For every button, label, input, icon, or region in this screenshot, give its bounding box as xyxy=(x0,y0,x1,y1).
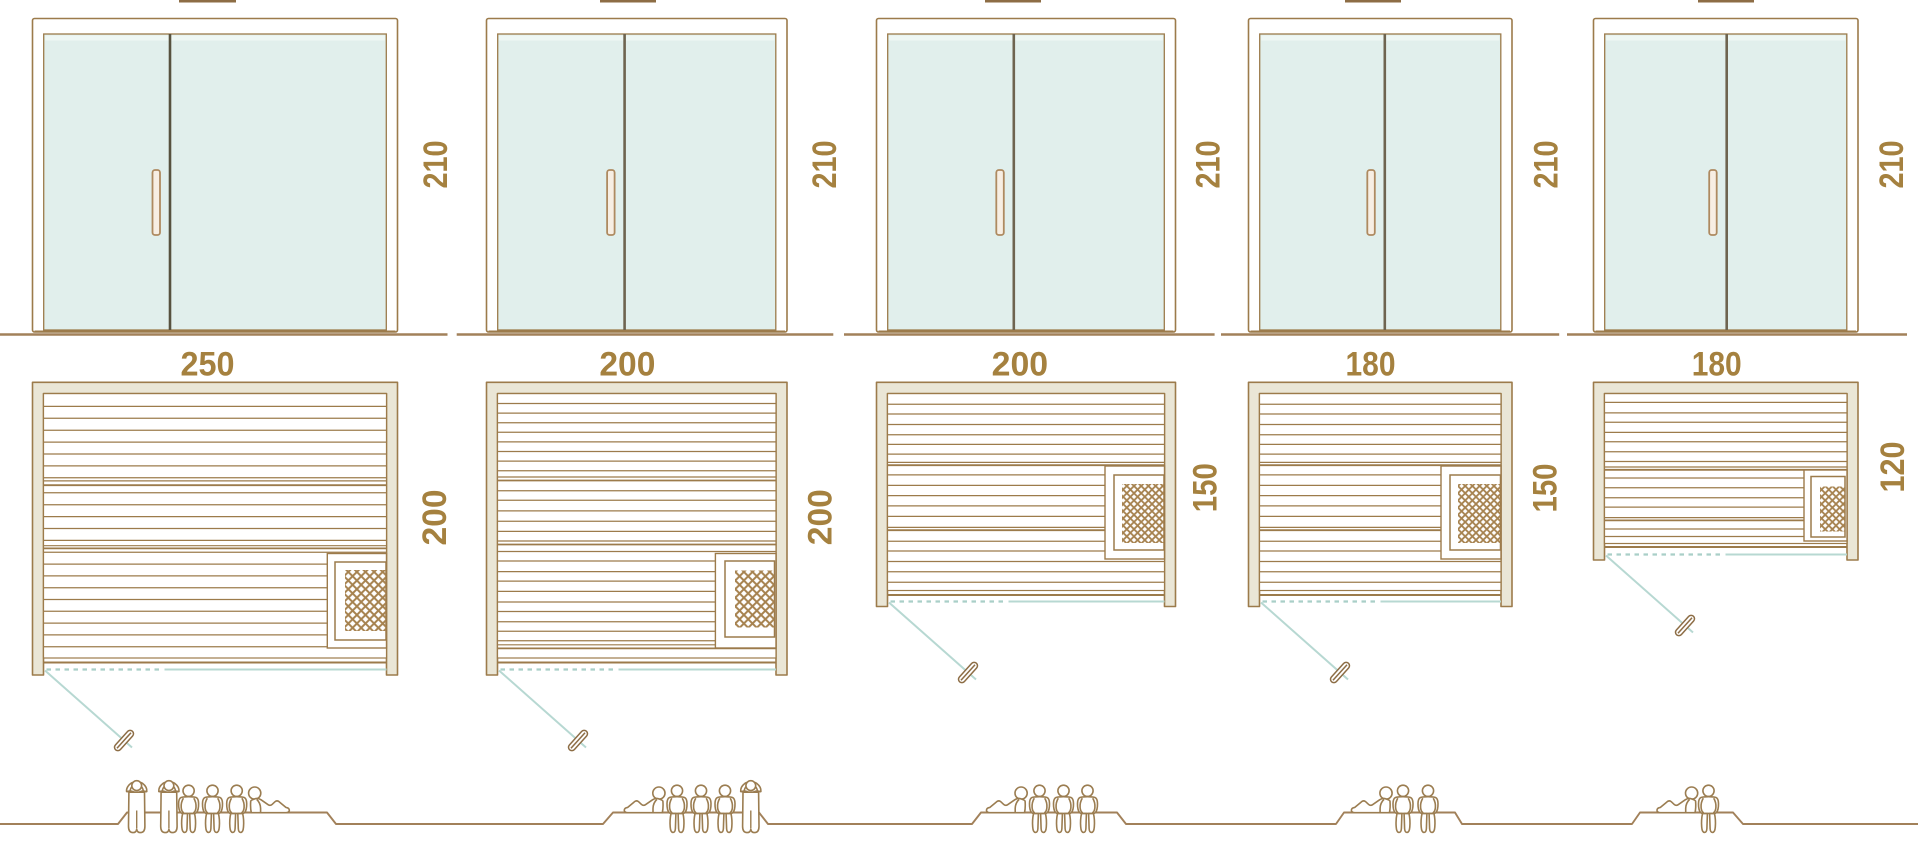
svg-text:250: 250 xyxy=(181,345,235,383)
svg-text:210: 210 xyxy=(1527,141,1565,189)
svg-text:180: 180 xyxy=(1692,345,1742,383)
svg-text:210: 210 xyxy=(1190,141,1228,189)
svg-text:200: 200 xyxy=(801,489,839,545)
svg-text:200: 200 xyxy=(599,345,655,383)
svg-text:120: 120 xyxy=(1874,442,1912,493)
svg-text:150: 150 xyxy=(1186,463,1224,512)
svg-text:180: 180 xyxy=(1346,345,1396,383)
svg-text:210: 210 xyxy=(1873,141,1911,189)
svg-text:200: 200 xyxy=(992,345,1049,383)
svg-text:200: 200 xyxy=(416,490,454,546)
svg-text:210: 210 xyxy=(417,141,455,189)
svg-text:150: 150 xyxy=(1527,464,1565,513)
svg-text:210: 210 xyxy=(806,141,844,189)
